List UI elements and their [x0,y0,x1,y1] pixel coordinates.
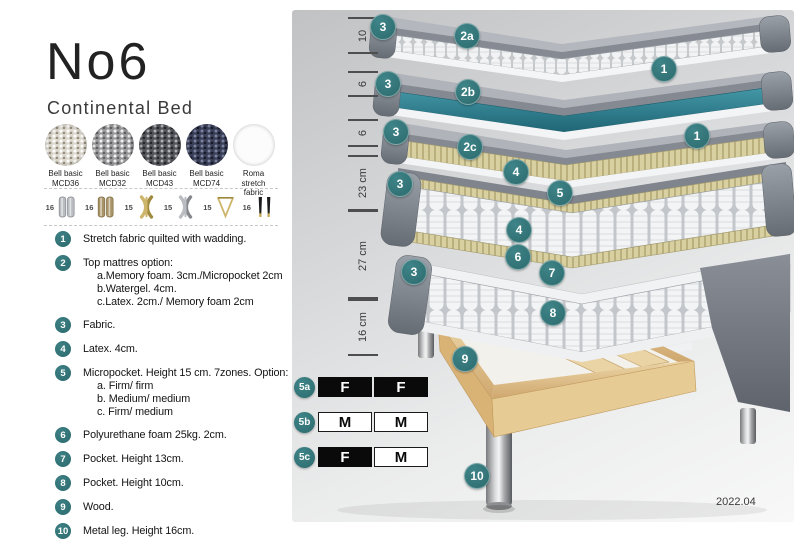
legend-sub-item: b. Medium/ medium [97,393,288,406]
fabric-swatch-list: Bell basic MCD36 Bell basic MCD32 Bell b… [44,124,275,198]
fabric-swatch[interactable]: Bell basic MCD32 [91,124,134,198]
leg-option[interactable]: 16 [44,191,81,223]
legend-text: Pocket. Height 10cm. [83,477,184,490]
fabric-swatch-image [233,124,275,166]
legend-sub-list: a.Memory foam. 3cm./Micropocket 2cmb.Wat… [83,270,283,309]
fabric-swatch-code: MCD74 [189,179,223,189]
legend-text-block: Pocket. Height 10cm. [83,475,184,491]
legend-number-badge: 4 [55,341,71,357]
firmness-cell[interactable]: F [374,377,428,397]
legend-number-badge: 3 [55,317,71,333]
leg-option[interactable]: 16 [83,191,120,223]
legend-text-block: Micropocket. Height 15 cm. 7zones. Optio… [83,365,288,419]
legend-sub-item: c.Latex. 2cm./ Memory foam 2cm [97,296,283,309]
legend-item: 7 Pocket. Height 13cm. [55,451,293,467]
fabric-swatch-label: Bell basic MCD36 [48,169,82,188]
firmness-row-badge: 5a [294,377,315,398]
legend-text-block: Latex. 4cm. [83,341,138,357]
fabric-swatch-label: Bell basic MCD74 [189,169,223,188]
legend-item: 3 Fabric. [55,317,293,333]
legend-number-badge: 2 [55,255,71,271]
firmness-row: 5a FF [294,377,428,397]
legend-text-block: Pocket. Height 13cm. [83,451,184,467]
firmness-cell[interactable]: F [318,447,372,467]
leg-icon [173,191,198,223]
leg-option[interactable]: 15 [202,191,239,223]
legend-item: 6 Polyurethane foam 25kg. 2cm. [55,427,293,443]
fabric-swatch-label: Bell basic MCD43 [142,169,176,188]
firmness-cell[interactable]: F [318,377,372,397]
leg-option[interactable]: 16 [241,191,278,223]
firmness-cell[interactable]: M [374,447,428,467]
version-label: 2022.04 [716,496,756,508]
legend-text-block: Top mattres option: a.Memory foam. 3cm./… [83,255,283,309]
legend-item: 9 Wood. [55,499,293,515]
leg-icon [55,191,80,223]
leg-height-label: 15 [123,203,133,212]
legend-number-badge: 1 [55,231,71,247]
fabric-swatch-code: MCD43 [142,179,176,189]
leg-option[interactable]: 15 [162,191,199,223]
legend-item: 5 Micropocket. Height 15 cm. 7zones. Opt… [55,365,293,419]
legend-item: 8 Pocket. Height 10cm. [55,475,293,491]
legend-number-badge: 10 [55,523,71,539]
leg-icon [134,191,159,223]
info-column: No6 Continental Bed Bell basic MCD36 Bel… [0,0,292,533]
fabric-swatch-code: MCD32 [95,179,129,189]
leg-height-label: 16 [44,203,54,212]
parts-legend: 1 Stretch fabric quilted with wadding. 2… [55,231,293,547]
legend-text: Stretch fabric quilted with wadding. [83,233,246,246]
fabric-swatch-name: Bell basic [48,169,82,179]
firmness-row: 5b MM [294,412,428,432]
legend-item: 4 Latex. 4cm. [55,341,293,357]
leg-height-label: 16 [83,203,93,212]
firmness-cell-group: FM [318,447,428,467]
exploded-view-panel: 10 6 6 23 cm 27 cm 16 cm 32a132b32c13454… [292,10,794,522]
fabric-swatch-name: Bell basic [189,169,223,179]
legend-text-block: Stretch fabric quilted with wadding. [83,231,246,247]
fabric-swatch-code: MCD36 [48,179,82,189]
leg-height-label: 15 [202,203,212,212]
firmness-cell-group: FF [318,377,428,397]
firmness-cell[interactable]: M [318,412,372,432]
legend-text: Micropocket. Height 15 cm. 7zones. Optio… [83,367,288,380]
firmness-row: 5c FM [294,447,428,467]
legend-number-badge: 7 [55,451,71,467]
fabric-swatch-image [92,124,134,166]
legend-text-block: Wood. [83,499,114,515]
legend-sub-item: a.Memory foam. 3cm./Micropocket 2cm [97,270,283,283]
product-sheet: No6 Continental Bed Bell basic MCD36 Bel… [0,0,800,533]
legend-text: Polyurethane foam 25kg. 2cm. [83,429,227,442]
legend-number-badge: 5 [55,365,71,381]
leg-height-label: 15 [162,203,172,212]
fabric-swatch[interactable]: Bell basic MCD43 [138,124,181,198]
firmness-row-badge: 5c [294,447,315,468]
leg-icon [252,191,277,223]
leg-icon [213,191,238,223]
fabric-swatch-name: Roma [232,169,275,179]
fabric-swatch-image [186,124,228,166]
legend-text: Latex. 4cm. [83,343,138,356]
firmness-cell[interactable]: M [374,412,428,432]
legend-item: 1 Stretch fabric quilted with wadding. [55,231,293,247]
fabric-swatch-name: Bell basic [142,169,176,179]
leg-option[interactable]: 15 [123,191,160,223]
fabric-swatch[interactable]: Roma stretch fabric [232,124,275,198]
legend-text-block: Fabric. [83,317,115,333]
legend-text: Top mattres option: [83,257,283,270]
firmness-row-badge: 5b [294,412,315,433]
legend-text: Pocket. Height 13cm. [83,453,184,466]
legend-sub-list: a. Firm/ firmb. Medium/ mediumc. Firm/ m… [83,380,288,419]
legend-number-badge: 6 [55,427,71,443]
product-subtitle: Continental Bed [47,98,193,119]
legend-text: Wood. [83,501,114,514]
legend-text-block: Polyurethane foam 25kg. 2cm. [83,427,227,443]
leg-options-row: 16 16 15 15 15 16 [44,188,278,226]
fabric-swatch-label: Bell basic MCD32 [95,169,129,188]
fabric-swatch[interactable]: Bell basic MCD36 [44,124,87,198]
legend-item: 10 Metal leg. Height 16cm. [55,523,293,539]
legend-sub-item: a. Firm/ firm [97,380,288,393]
leg-height-label: 16 [241,203,251,212]
legend-text-block: Metal leg. Height 16cm. [83,523,194,539]
legend-text: Fabric. [83,319,115,332]
legend-item: 2 Top mattres option: a.Memory foam. 3cm… [55,255,293,309]
fabric-swatch-image [45,124,87,166]
legend-number-badge: 8 [55,475,71,491]
legend-number-badge: 9 [55,499,71,515]
legend-sub-item: b.Watergel. 4cm. [97,283,283,296]
product-title: No6 [46,36,150,88]
legend-text: Metal leg. Height 16cm. [83,525,194,538]
firmness-matrix: 5a FF 5b MM 5c FM [292,10,794,522]
firmness-cell-group: MM [318,412,428,432]
fabric-swatch[interactable]: Bell basic MCD74 [185,124,228,198]
legend-sub-item: c. Firm/ medium [97,406,288,419]
leg-icon [94,191,119,223]
fabric-swatch-name: Bell basic [95,169,129,179]
fabric-swatch-image [139,124,181,166]
